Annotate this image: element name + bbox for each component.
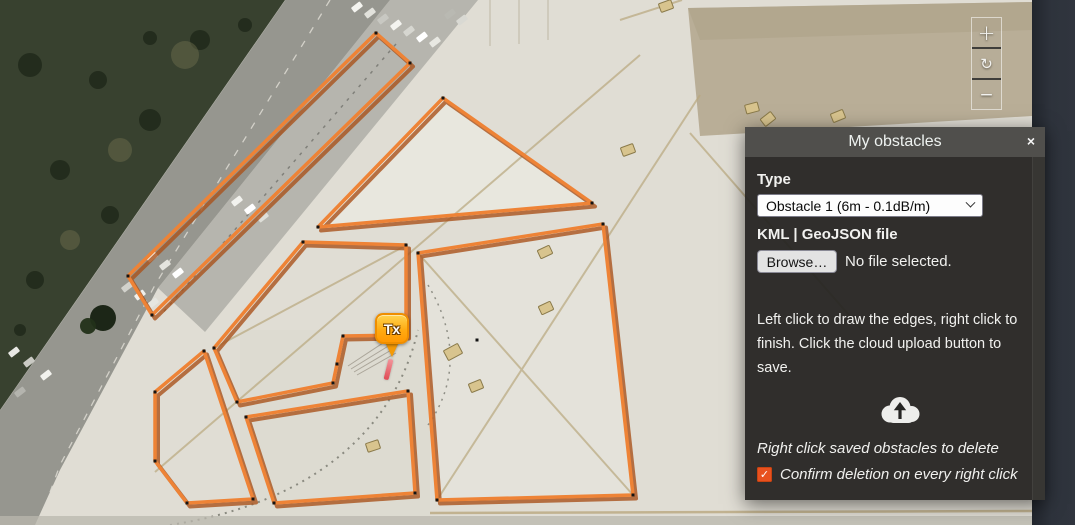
polygon-vertex[interactable] (409, 62, 412, 65)
app-window: Tx + ↻ − My obstacles × Type Obstacle 1 … (0, 0, 1075, 525)
type-label: Type (757, 171, 1043, 188)
polygon-vertex[interactable] (407, 390, 410, 393)
polygon-vertex[interactable] (375, 32, 378, 35)
polygon-vertex[interactable] (302, 241, 305, 244)
panel-body: Type Obstacle 1 (6m - 0.1dB/m) KML | Geo… (745, 157, 1045, 500)
obstacle-polygon[interactable] (245, 390, 419, 507)
panel-title: My obstacles (848, 133, 941, 151)
tx-marker-tail (385, 342, 399, 357)
polygon-vertex[interactable] (336, 363, 339, 366)
no-file-text: No file selected. (845, 253, 952, 270)
confirm-deletion-checkbox[interactable]: ✓ (757, 467, 772, 482)
polygon-vertex[interactable] (203, 350, 206, 353)
polygon-vertex[interactable] (273, 502, 276, 505)
polygon-vertex[interactable] (476, 339, 479, 342)
polygon-vertex[interactable] (186, 502, 189, 505)
polygon-vertex[interactable] (127, 275, 130, 278)
zoom-in-button[interactable]: + (972, 18, 1001, 47)
tx-marker-balloon[interactable]: Tx (375, 313, 409, 344)
confirm-deletion-label: Confirm deletion on every right click (780, 466, 1018, 483)
obstacle-polygon[interactable] (417, 223, 637, 504)
polygon-vertex[interactable] (442, 97, 445, 100)
polygon-vertex[interactable] (602, 223, 605, 226)
polygon-vertex[interactable] (332, 382, 335, 385)
polygon-vertex[interactable] (154, 460, 157, 463)
cloud-upload-icon[interactable] (877, 394, 923, 426)
obstacle-polygon[interactable] (317, 97, 596, 231)
polygon-vertex[interactable] (591, 202, 594, 205)
polygon-vertex[interactable] (154, 391, 157, 394)
chevron-down-icon (966, 198, 976, 208)
browse-button[interactable]: Browse… (757, 250, 837, 273)
close-icon[interactable]: × (1027, 132, 1035, 150)
my-obstacles-panel: My obstacles × Type Obstacle 1 (6m - 0.1… (745, 127, 1045, 500)
polygon-vertex[interactable] (632, 494, 635, 497)
polygon-vertex[interactable] (342, 335, 345, 338)
instructions-text: Left click to draw the edges, right clic… (757, 308, 1031, 380)
panel-header[interactable]: My obstacles × (745, 127, 1045, 157)
panel-scrollbar[interactable] (1032, 157, 1045, 500)
zoom-out-button[interactable]: − (972, 80, 1001, 109)
tx-marker-label: Tx (384, 321, 400, 337)
map-controls: + ↻ − (971, 17, 1002, 110)
polygon-vertex[interactable] (317, 226, 320, 229)
obstacle-type-select[interactable]: Obstacle 1 (6m - 0.1dB/m) (757, 194, 983, 217)
file-label: KML | GeoJSON file (757, 226, 1043, 243)
reload-button[interactable]: ↻ (972, 49, 1001, 78)
polygon-vertex[interactable] (436, 499, 439, 502)
polygon-vertex[interactable] (414, 492, 417, 495)
polygon-vertex[interactable] (417, 252, 420, 255)
polygon-vertex[interactable] (151, 314, 154, 317)
polygon-vertex[interactable] (252, 498, 255, 501)
obstacle-polygon[interactable] (154, 350, 257, 507)
polygon-vertex[interactable] (213, 347, 216, 350)
obstacle-type-value: Obstacle 1 (6m - 0.1dB/m) (766, 198, 963, 214)
polygon-vertex[interactable] (236, 401, 239, 404)
polygon-vertex[interactable] (245, 416, 248, 419)
delete-hint-text: Right click saved obstacles to delete (757, 440, 1043, 457)
polygon-vertex[interactable] (405, 244, 408, 247)
